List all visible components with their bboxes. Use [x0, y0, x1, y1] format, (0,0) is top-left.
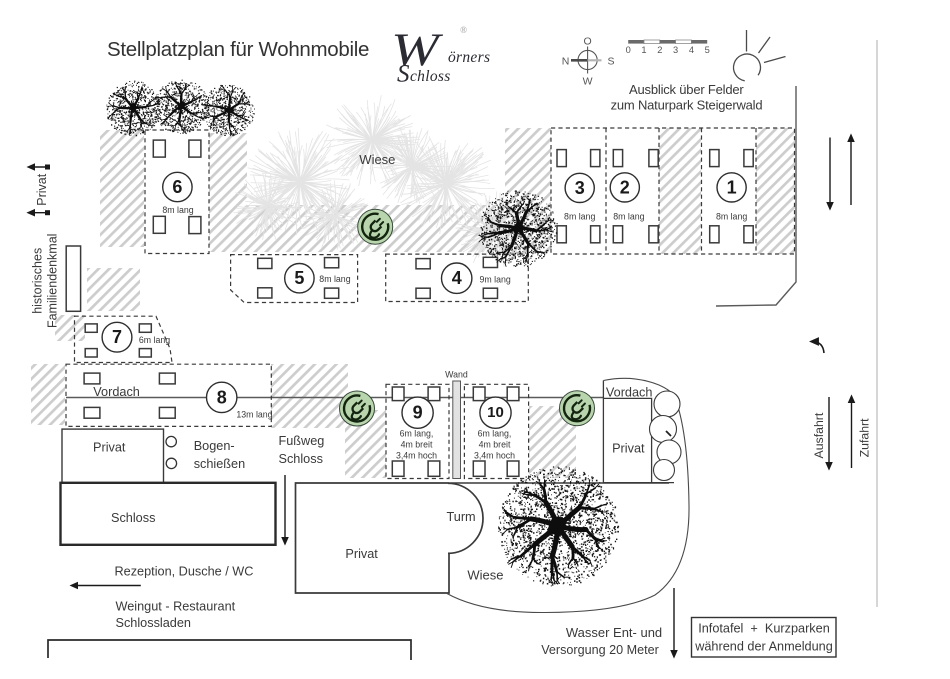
svg-text:Privat: Privat	[612, 442, 645, 456]
svg-text:3: 3	[673, 45, 678, 55]
svg-text:3,4m hoch: 3,4m hoch	[474, 451, 515, 461]
svg-text:Zufahrt: Zufahrt	[857, 418, 871, 458]
svg-text:8m lang: 8m lang	[319, 274, 350, 284]
svg-text:S: S	[397, 61, 410, 88]
svg-text:8m lang: 8m lang	[564, 212, 595, 222]
svg-text:Vordach: Vordach	[93, 385, 140, 399]
svg-text:Wiese: Wiese	[467, 568, 503, 583]
svg-text:®: ®	[460, 25, 467, 35]
svg-text:8: 8	[217, 387, 227, 407]
svg-text:0: 0	[626, 45, 631, 55]
svg-text:Familiendenkmal: Familiendenkmal	[46, 234, 60, 328]
svg-text:Turm: Turm	[447, 510, 476, 524]
svg-text:3: 3	[575, 178, 585, 198]
svg-text:Privat: Privat	[345, 547, 378, 561]
svg-text:chloss: chloss	[410, 68, 451, 85]
svg-text:4: 4	[689, 45, 694, 55]
svg-text:6: 6	[172, 177, 182, 197]
svg-text:4: 4	[452, 268, 462, 288]
svg-text:8m lang: 8m lang	[162, 205, 193, 215]
svg-text:Wiese: Wiese	[359, 152, 395, 167]
svg-text:1: 1	[641, 45, 646, 55]
svg-text:O: O	[584, 36, 592, 48]
svg-text:10: 10	[487, 404, 504, 421]
svg-text:N: N	[562, 55, 570, 67]
svg-text:4m breit: 4m breit	[479, 440, 511, 450]
svg-text:6m lang,: 6m lang,	[478, 429, 512, 439]
svg-text:historisches: historisches	[30, 248, 44, 314]
svg-text:schießen: schießen	[194, 457, 245, 471]
svg-text:Privat: Privat	[93, 441, 126, 455]
svg-text:5: 5	[705, 45, 710, 55]
svg-text:5: 5	[294, 268, 304, 288]
svg-text:Fußweg: Fußweg	[279, 434, 325, 448]
svg-text:6m lang: 6m lang	[139, 335, 170, 345]
svg-text:Ausblick über Felder: Ausblick über Felder	[629, 82, 744, 97]
svg-text:13m lang: 13m lang	[236, 410, 272, 420]
svg-text:Privat: Privat	[35, 173, 49, 205]
svg-text:9m lang: 9m lang	[480, 275, 511, 285]
svg-text:2: 2	[620, 177, 630, 197]
svg-text:während der Anmeldung: während der Anmeldung	[694, 640, 833, 654]
svg-text:8m lang: 8m lang	[613, 212, 644, 222]
svg-text:1: 1	[727, 177, 737, 197]
svg-text:2: 2	[657, 45, 662, 55]
svg-text:Weingut - Restaurant: Weingut - Restaurant	[116, 600, 236, 614]
svg-text:S: S	[607, 55, 614, 67]
svg-text:Infotafel + Kurzparken: Infotafel + Kurzparken	[698, 622, 830, 636]
svg-text:örners: örners	[448, 49, 490, 66]
svg-text:7: 7	[112, 327, 122, 347]
svg-text:zum Naturpark Steigerwald: zum Naturpark Steigerwald	[611, 98, 763, 113]
svg-text:9: 9	[413, 403, 423, 423]
svg-text:3,4m hoch: 3,4m hoch	[396, 451, 437, 461]
svg-text:Schloss: Schloss	[279, 452, 323, 466]
svg-text:Ausfahrt: Ausfahrt	[812, 412, 826, 458]
svg-text:Schlossladen: Schlossladen	[116, 616, 191, 630]
svg-text:Vordach: Vordach	[606, 386, 653, 400]
svg-text:4m breit: 4m breit	[401, 440, 433, 450]
svg-text:Schloss: Schloss	[111, 511, 155, 525]
svg-text:Versorgung 20 Meter: Versorgung 20 Meter	[541, 643, 659, 657]
svg-text:Bogen-: Bogen-	[194, 439, 235, 453]
svg-text:8m lang: 8m lang	[716, 212, 747, 222]
svg-text:Stellplatzplan für Wohnmobile: Stellplatzplan für Wohnmobile	[107, 38, 369, 61]
svg-text:Wand: Wand	[445, 370, 468, 380]
svg-text:Rezeption, Dusche / WC: Rezeption, Dusche / WC	[115, 565, 254, 579]
svg-text:Wasser Ent- und: Wasser Ent- und	[566, 625, 662, 640]
svg-text:6m lang,: 6m lang,	[400, 429, 434, 439]
svg-text:W: W	[583, 76, 593, 88]
